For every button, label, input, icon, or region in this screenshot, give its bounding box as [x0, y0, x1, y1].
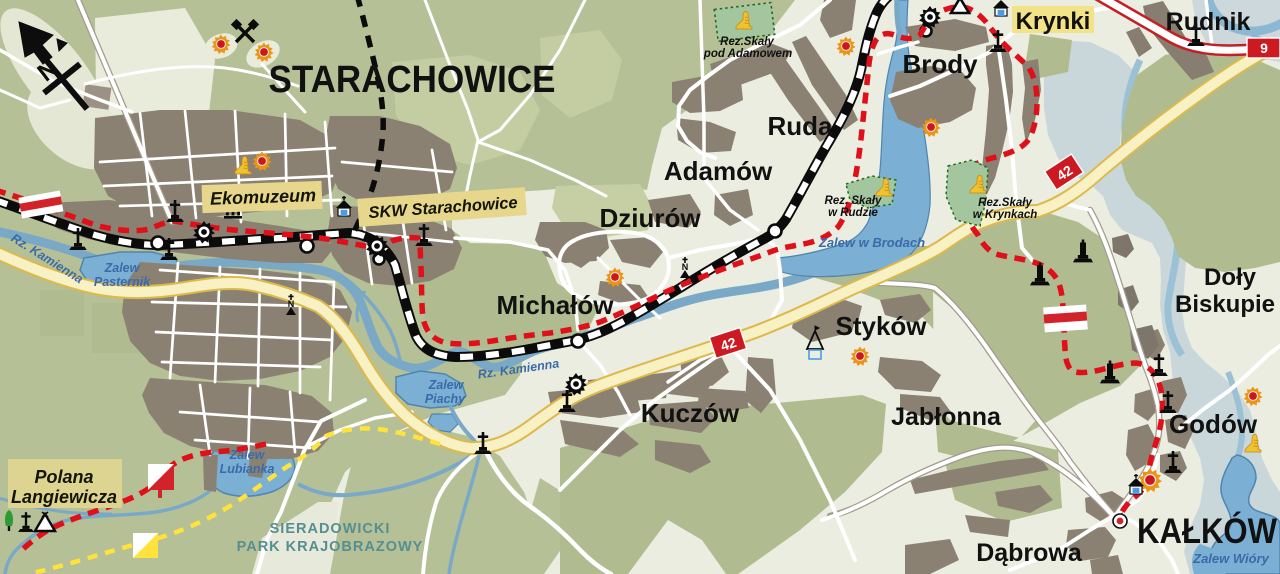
svg-text:Jabłonna: Jabłonna: [891, 403, 1002, 431]
svg-text:Polana: Polana: [34, 467, 93, 487]
svg-text:SIERADOWICKI: SIERADOWICKI: [270, 521, 391, 537]
svg-text:KAŁKÓW: KAŁKÓW: [1137, 511, 1277, 551]
svg-text:Zalew: Zalew: [229, 448, 266, 462]
svg-text:Ekomuzeum: Ekomuzeum: [210, 185, 317, 209]
svg-text:Doły: Doły: [1204, 264, 1257, 291]
svg-text:Piachy: Piachy: [425, 392, 466, 406]
svg-text:Brody: Brody: [902, 49, 978, 79]
svg-text:Dziurów: Dziurów: [599, 203, 701, 233]
svg-text:w Rudzie: w Rudzie: [828, 207, 878, 219]
svg-text:Michałów: Michałów: [496, 290, 614, 320]
svg-text:Dąbrowa: Dąbrowa: [976, 539, 1083, 567]
svg-text:Adamów: Adamów: [664, 156, 773, 186]
svg-text:Ruda: Ruda: [768, 111, 834, 141]
svg-text:Zalew: Zalew: [428, 378, 465, 392]
svg-text:Styków: Styków: [835, 311, 927, 341]
svg-text:Kuczów: Kuczów: [641, 398, 740, 428]
svg-text:Rez.Skały: Rez.Skały: [720, 36, 774, 48]
svg-text:Zalew w Brodach: Zalew w Brodach: [818, 235, 925, 250]
svg-text:STARACHOWICE: STARACHOWICE: [269, 59, 556, 101]
svg-text:Zalew Wióry: Zalew Wióry: [1192, 551, 1270, 566]
svg-text:w Krynkach: w Krynkach: [973, 209, 1038, 221]
svg-text:Rudnik: Rudnik: [1166, 8, 1251, 36]
svg-text:Krynki: Krynki: [1016, 8, 1091, 35]
svg-text:pod Adamowem: pod Adamowem: [703, 48, 792, 60]
svg-text:Pasternik: Pasternik: [94, 275, 151, 289]
svg-text:Godów: Godów: [1169, 409, 1258, 439]
svg-text:Rez. Skały: Rez. Skały: [825, 195, 882, 207]
svg-text:Zalew: Zalew: [104, 261, 141, 275]
svg-text:Rez.Skały: Rez.Skały: [978, 197, 1032, 209]
svg-text:PARK KRAJOBRAZOWY: PARK KRAJOBRAZOWY: [237, 539, 424, 555]
svg-text:Langiewicza: Langiewicza: [11, 487, 117, 507]
svg-text:Lubianka: Lubianka: [220, 462, 275, 476]
svg-text:Biskupie: Biskupie: [1175, 291, 1275, 318]
svg-text:9: 9: [1260, 40, 1268, 56]
